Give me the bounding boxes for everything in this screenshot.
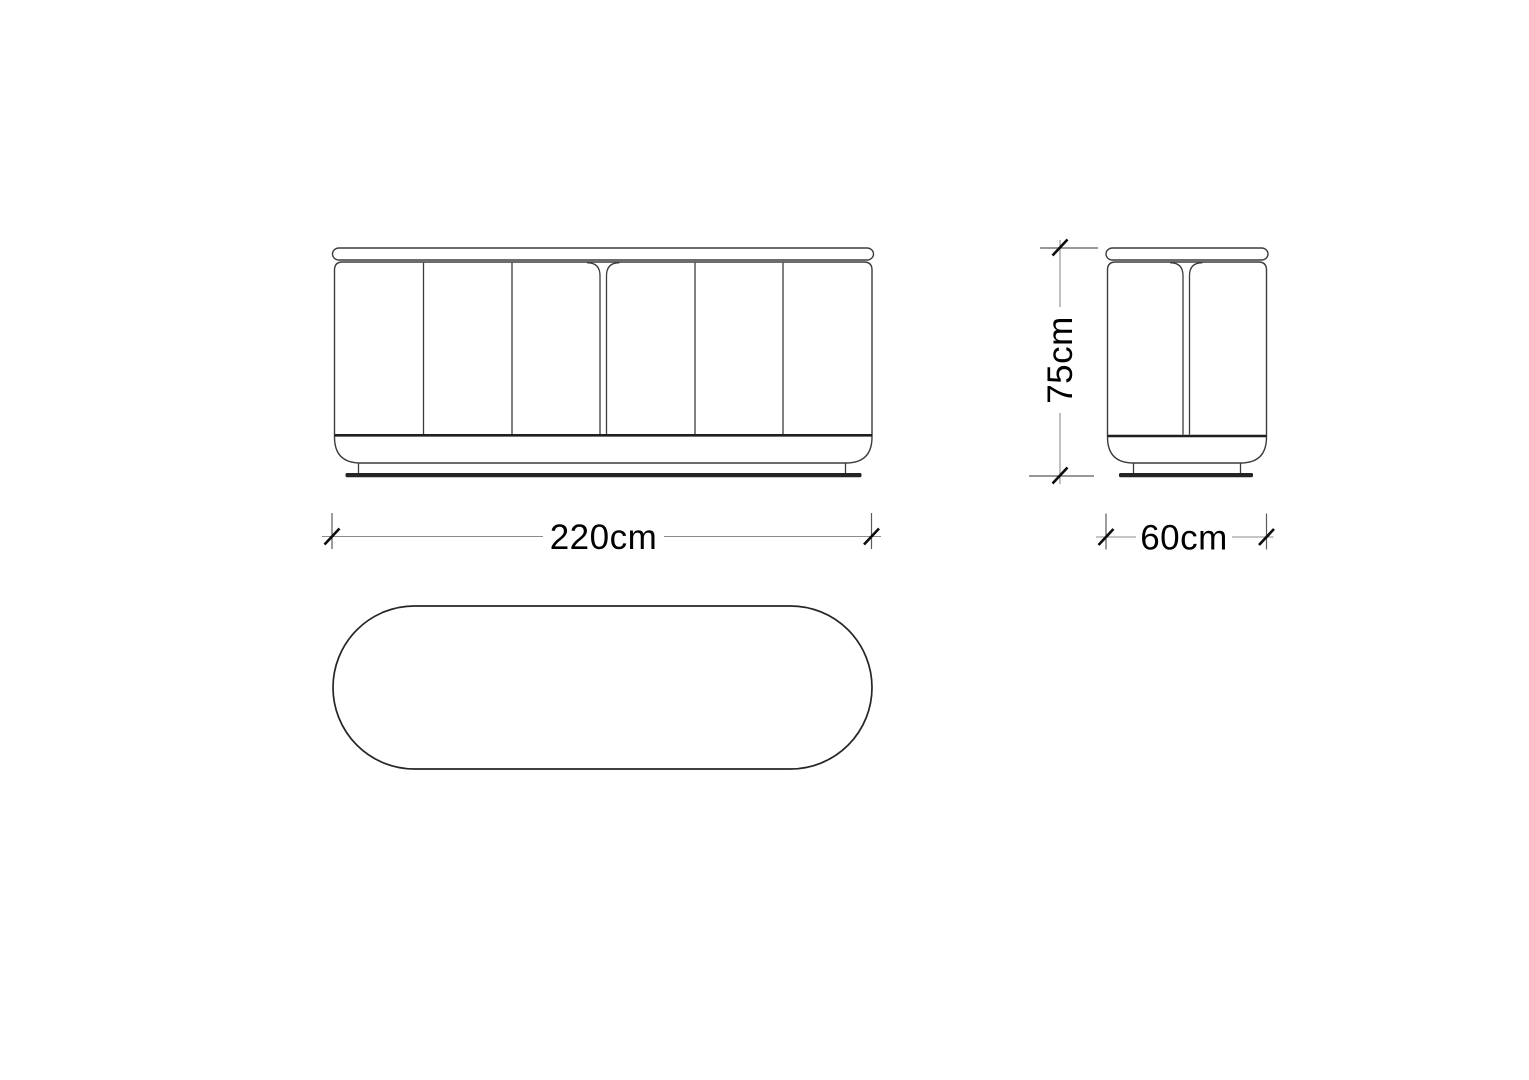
width-dimension-label: 220cm: [550, 518, 658, 557]
side-base-plate: [1119, 473, 1253, 477]
front-base-plate: [346, 473, 862, 477]
side-view: [1106, 248, 1268, 477]
top-view-outline: [333, 606, 872, 769]
height-dimension-label: 75cm: [1041, 316, 1080, 404]
side-body-outline: [1108, 262, 1267, 463]
width-dimension: 220cm: [322, 513, 881, 557]
depth-dimension-label: 60cm: [1140, 519, 1228, 558]
depth-dimension: 60cm: [1096, 514, 1274, 558]
drawing-canvas: 220cm 75cm 60cm: [0, 0, 1529, 1080]
top-view: [333, 606, 872, 769]
front-view: [333, 248, 874, 477]
side-top-slab: [1106, 248, 1268, 260]
front-body-outline: [335, 262, 873, 463]
front-top-slab: [333, 248, 874, 260]
furniture-dimension-drawing: 220cm 75cm 60cm: [0, 0, 1529, 1080]
height-dimension: 75cm: [1029, 240, 1098, 485]
